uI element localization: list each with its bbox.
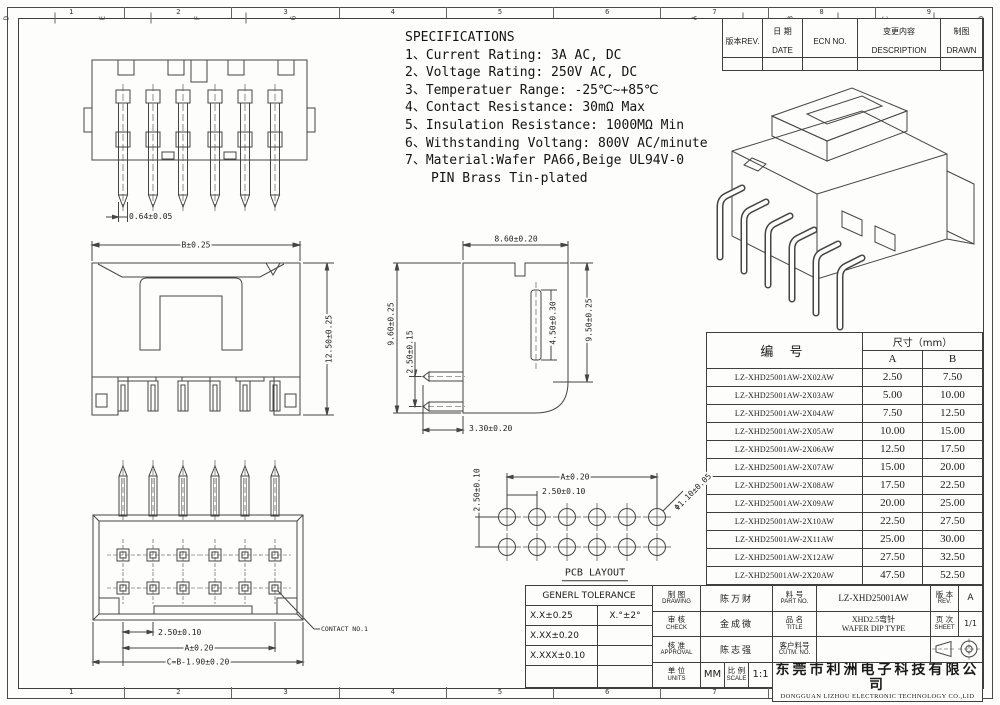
units-value: MM [701, 662, 725, 688]
table-row: LZ-XHD25001AW-2X03AW5.0010.00 [707, 387, 983, 405]
table-row: LZ-XHD25001AW-2X02AW2.507.50 [707, 369, 983, 387]
tolerance-title: GENERL TOLERANCE [526, 586, 653, 606]
approval-table: 制 图DRAWING 陈万财 审 核CHECK 金成微 核 准APPROVAL … [652, 585, 773, 688]
parts-header-dim: 尺寸（mm） [863, 333, 983, 351]
ruler-left: ABCDEFG [0, 13, 342, 24]
company-name-en: DONGGUAN LIZHOU ELECTRONIC TECHNOLOGY CO… [773, 693, 982, 701]
view-front [82, 232, 342, 432]
rev-empty-cell [723, 58, 763, 71]
dim-pcb-pitch-h: 2.50±0.10 [541, 487, 586, 496]
company-name-zh: 东莞市利洲电子科技有限公司 [773, 663, 982, 693]
engineering-drawing-sheet: 123456789 123456789 ABCDEFG ABCDEFG SPEC… [0, 0, 1000, 705]
dim-body-height: 12.50±0.25 [324, 314, 333, 364]
dim-pin-width: 0.64±0.05 [128, 212, 173, 221]
parts-table: 编 号 尺寸（mm） A B LZ-XHD25001AW-2X02AW2.507… [706, 332, 983, 585]
check-name: 金成微 [701, 611, 773, 637]
dim-height-right: 9.50±0.25 [584, 297, 593, 342]
dim-depth: 8.60±0.20 [493, 234, 538, 243]
table-row: LZ-XHD25001AW-2X08AW17.5022.50 [707, 477, 983, 495]
product-title: XHD2.5弯针WAFER DIP TYPE [817, 611, 931, 637]
part-number: LZ-XHD25001AW [817, 586, 931, 612]
view-side [385, 230, 600, 442]
table-row: LZ-XHD25001AW-2X12AW27.5032.50 [707, 549, 983, 567]
table-row: LZ-XHD25001AW-2X06AW12.5017.50 [707, 441, 983, 459]
table-row: LZ-XHD25001AW-2X11AW25.0030.00 [707, 531, 983, 549]
scale-value: 1:1 [749, 662, 773, 688]
dim-pin-row-pitch: 2.50±0.15 [405, 329, 414, 374]
dim-pcb-pitch-v: 2.50±0.10 [472, 467, 481, 512]
projection-symbol [931, 637, 983, 663]
tolerance-table: GENERL TOLERANCE X.X±0.25X.°±2° X.XX±0.2… [525, 585, 653, 688]
specifications-block: SPECIFICATIONS 1、Current Rating: 3A AC, … [405, 29, 708, 187]
dim-latch: 4.50±0.30 [548, 300, 557, 345]
table-row: LZ-XHD25001AW-2X05AW10.0015.00 [707, 423, 983, 441]
table-row: LZ-XHD25001AW-2X20AW47.5052.50 [707, 567, 983, 585]
table-row: LZ-XHD25001AW-2X10AW22.5027.50 [707, 513, 983, 531]
view-isometric-3d [712, 76, 987, 336]
contact-no1-label: CONTACT NO.1 [320, 626, 369, 633]
dim-pcb-a: A±0.20 [560, 472, 591, 481]
drawing-name: 陈万财 [701, 586, 773, 612]
dim-body-width: B±0.25 [181, 240, 212, 249]
part-info-table: 料 号PART NO. LZ-XHD25001AW 版 本REV. A 品 名T… [772, 585, 983, 702]
rev-value: A [959, 586, 983, 612]
approval-name: 陈志强 [701, 637, 773, 663]
pcb-layout-title: PCB LAYOUT [562, 567, 628, 581]
dim-c-formula: C=B-1.90±0.20 [166, 657, 231, 666]
revision-strip: 版本REV. 日 期DATE ECN NO. 变更内容DESCRIPTION 制… [722, 18, 983, 71]
dim-contact-pitch: 2.50±0.10 [157, 628, 202, 637]
table-row: LZ-XHD25001AW-2X09AW20.0025.00 [707, 495, 983, 513]
dim-height-outer: 9.60±0.25 [386, 301, 395, 346]
company-cell: 东莞市利洲电子科技有限公司 DONGGUAN LIZHOU ELECTRONIC… [773, 662, 983, 701]
table-row: LZ-XHD25001AW-2X04AW7.5012.50 [707, 405, 983, 423]
table-row: LZ-XHD25001AW-2X07AW15.0020.00 [707, 459, 983, 477]
parts-header-part: 编 号 [707, 333, 863, 369]
sheet-value: 1/1 [959, 611, 983, 637]
dim-a: A±0.20 [184, 643, 215, 652]
specs-title: SPECIFICATIONS [405, 29, 708, 47]
third-angle-projection-icon [931, 638, 981, 660]
view-top-pins-down [82, 52, 332, 230]
dim-pin-length: 3.30±0.20 [468, 424, 513, 433]
